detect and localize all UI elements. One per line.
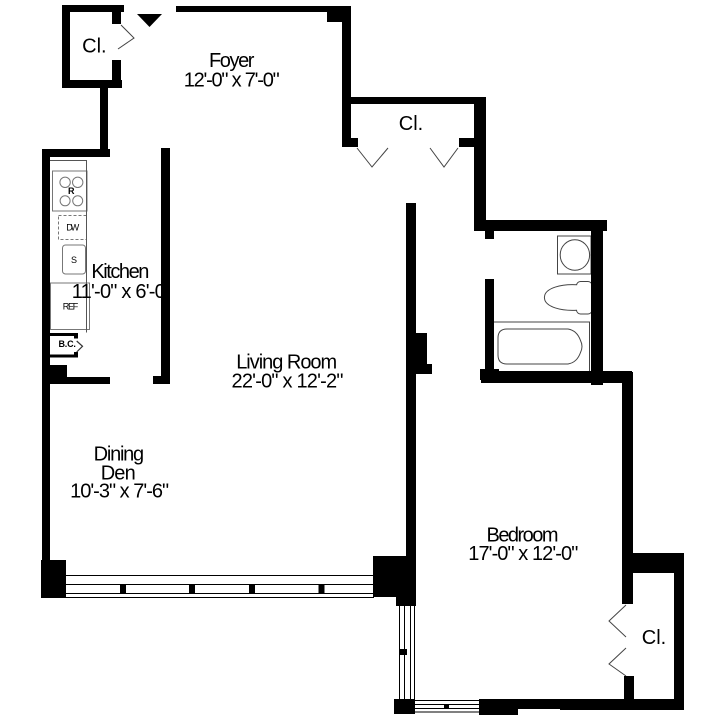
svg-text:Cl.: Cl. xyxy=(82,35,106,57)
svg-text:REF: REF xyxy=(63,302,79,312)
svg-text:B.C.: B.C. xyxy=(58,339,76,349)
svg-text:Cl.: Cl. xyxy=(642,627,666,649)
svg-text:S: S xyxy=(71,255,77,265)
svg-text:Kitchen: Kitchen xyxy=(91,261,149,283)
svg-text:Cl.: Cl. xyxy=(399,113,423,135)
svg-text:12'-0" x 7'-0": 12'-0" x 7'-0" xyxy=(184,69,280,91)
svg-text:22'-0" x 12'-2": 22'-0" x 12'-2" xyxy=(232,370,344,392)
svg-text:10'-3" x 7'-6": 10'-3" x 7'-6" xyxy=(70,481,169,503)
svg-text:DW: DW xyxy=(66,223,80,233)
svg-text:17'-0" x 12'-0": 17'-0" x 12'-0" xyxy=(468,543,578,565)
svg-text:R: R xyxy=(68,186,75,196)
svg-text:11'-0" x 6'-0: 11'-0" x 6'-0 xyxy=(72,281,166,303)
